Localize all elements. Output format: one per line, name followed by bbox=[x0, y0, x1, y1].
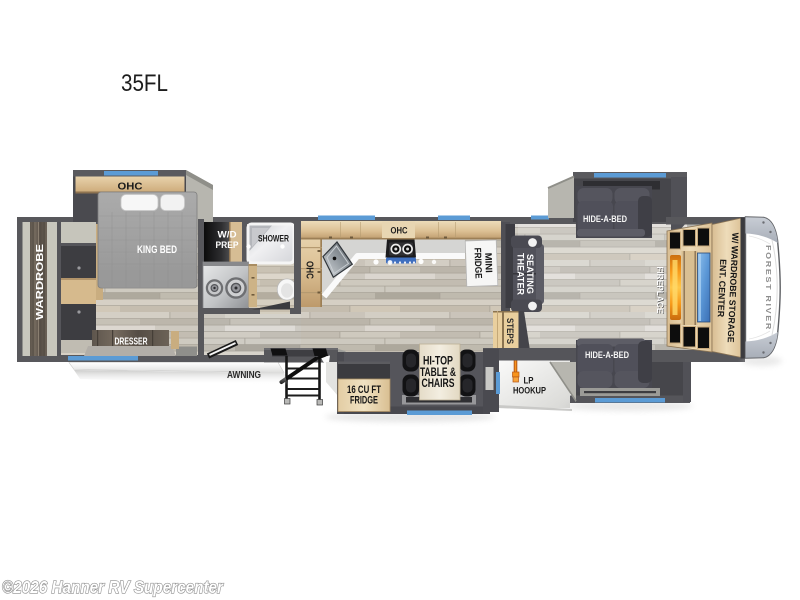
svg-text:FRIDGE: FRIDGE bbox=[471, 247, 483, 278]
svg-text:FRIDGE: FRIDGE bbox=[350, 395, 378, 407]
svg-text:OHC: OHC bbox=[304, 261, 315, 279]
svg-text:STEPS: STEPS bbox=[505, 318, 515, 344]
svg-text:CHAIRS: CHAIRS bbox=[422, 378, 455, 390]
svg-text:SEATING: SEATING bbox=[524, 254, 535, 294]
svg-text:FIREPLACE: FIREPLACE bbox=[655, 267, 665, 314]
svg-text:HIDE-A-BED: HIDE-A-BED bbox=[583, 214, 627, 224]
svg-text:PREP: PREP bbox=[216, 240, 240, 251]
svg-text:THEATER: THEATER bbox=[515, 253, 526, 295]
svg-text:W/D: W/D bbox=[218, 230, 237, 241]
svg-text:HOOKUP: HOOKUP bbox=[513, 386, 547, 397]
svg-text:KING BED: KING BED bbox=[137, 244, 177, 256]
svg-text:SHOWER: SHOWER bbox=[258, 234, 289, 245]
svg-text:AWNING: AWNING bbox=[227, 369, 261, 381]
svg-text:HI-TOP: HI-TOP bbox=[423, 356, 453, 368]
svg-text:OHC: OHC bbox=[391, 226, 408, 237]
svg-text:©2026 Hanner RV Supercenter: ©2026 Hanner RV Supercenter bbox=[2, 577, 224, 597]
svg-text:35FL: 35FL bbox=[121, 70, 168, 97]
svg-text:FOREST RIVER: FOREST RIVER bbox=[764, 245, 771, 331]
svg-text:OHC: OHC bbox=[118, 181, 143, 193]
svg-text:WARDROBE: WARDROBE bbox=[35, 244, 46, 320]
svg-text:HIDE-A-BED: HIDE-A-BED bbox=[585, 350, 629, 360]
svg-text:DRESSER: DRESSER bbox=[115, 336, 148, 348]
